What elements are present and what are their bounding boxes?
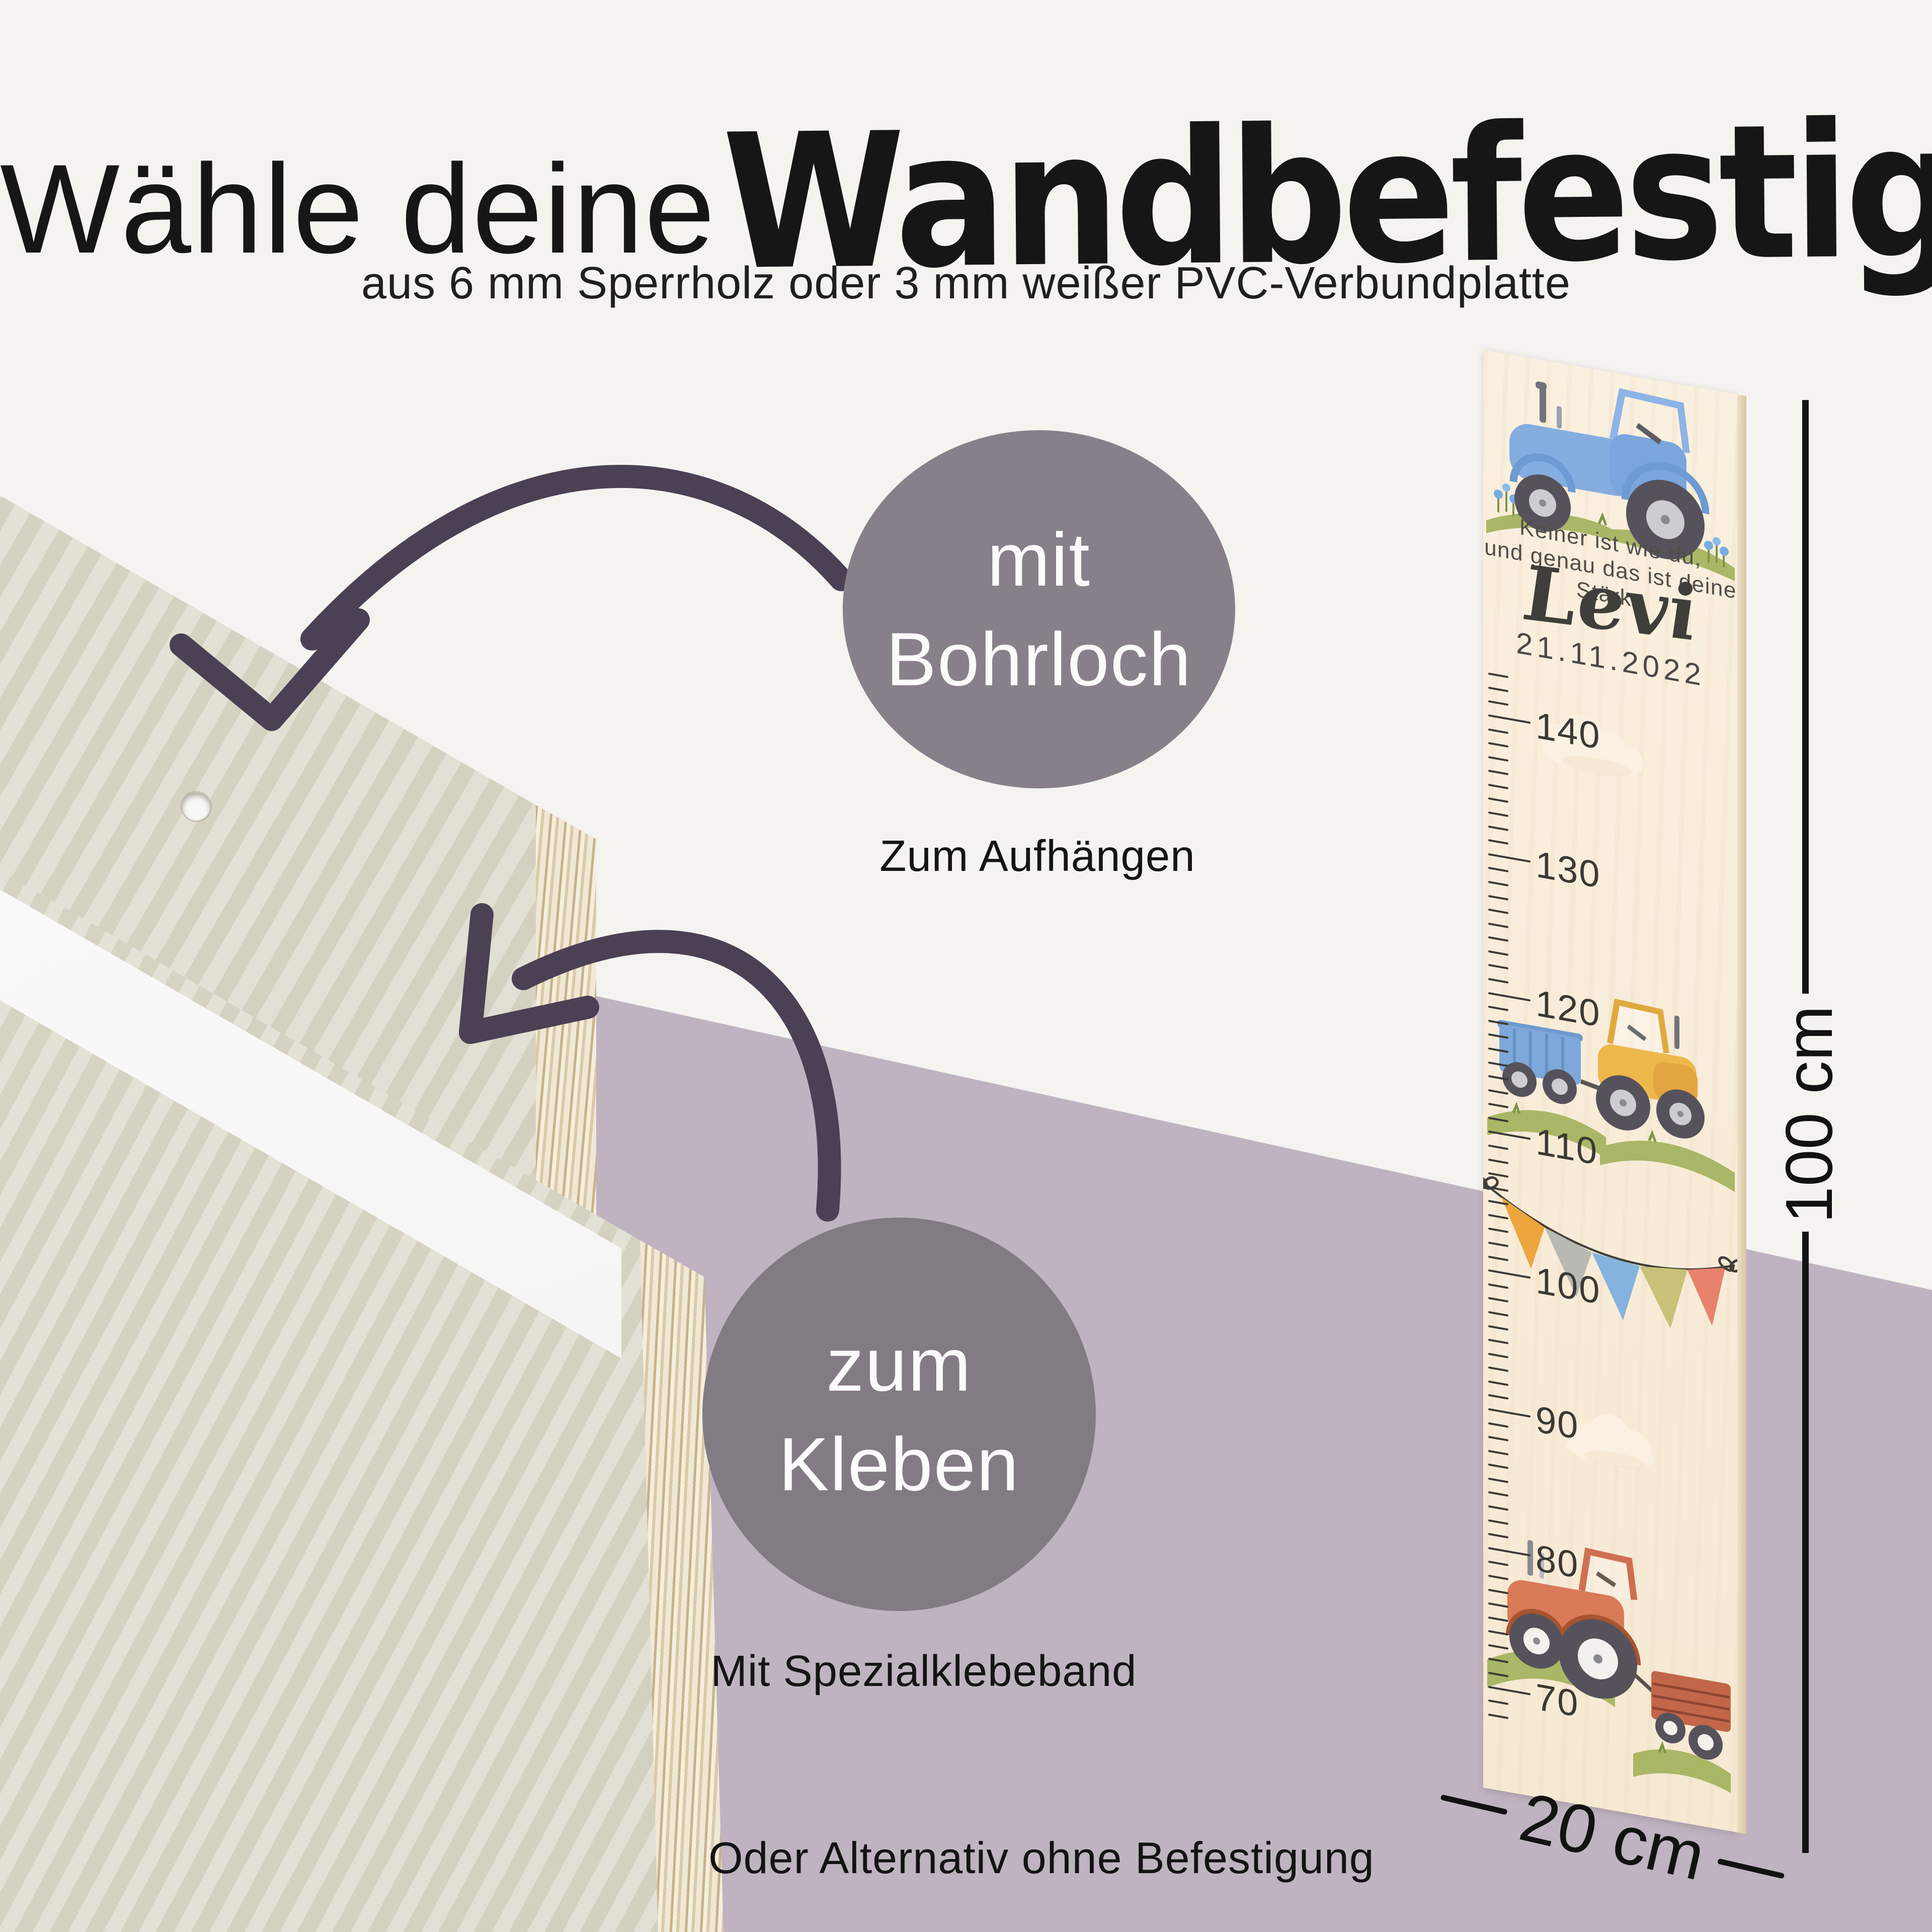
ruler-tick-major (1488, 1547, 1531, 1557)
ruler-tick-major (1488, 1131, 1531, 1140)
ruler-tick-minor (1488, 1561, 1508, 1566)
ruler-tick-minor (1488, 1214, 1508, 1220)
ruler-tick-minor (1488, 1242, 1508, 1247)
ruler-tick-major (1488, 853, 1531, 863)
ruler-tick-minor (1488, 1644, 1508, 1650)
ruler-tick-minor (1488, 1255, 1508, 1261)
ruler-tick-minor (1488, 1172, 1508, 1178)
ruler-tick-major (1488, 1685, 1531, 1695)
ruler-number: 140 (1536, 703, 1600, 758)
ruler: 140130120110100908070 (1483, 350, 1738, 1832)
ruler-number: 90 (1536, 1397, 1579, 1447)
width-dimension-dash-left (1440, 1794, 1508, 1815)
option-drill-line2: Bohrloch (886, 609, 1192, 709)
ruler-number: 80 (1536, 1536, 1579, 1586)
ruler-tick-minor (1488, 1602, 1508, 1608)
ruler-tick-minor (1488, 1491, 1508, 1497)
footer-note: Oder Alternativ ohne Befestigung (629, 1832, 1454, 1884)
ruler-tick-major (1488, 992, 1531, 1001)
drill-hole (182, 792, 210, 821)
ruler-tick-major (1488, 1408, 1531, 1418)
ruler-tick-minor (1488, 673, 1508, 678)
ruler-tick-minor (1488, 1283, 1508, 1289)
ruler-tick-minor (1488, 1048, 1508, 1053)
ruler-tick-minor (1488, 1103, 1508, 1108)
product-infographic: { "title": { "light": "Wähle deine", "ma… (0, 0, 1932, 1932)
ruler-tick-minor (1488, 1672, 1508, 1677)
ruler-tick-minor (1488, 839, 1508, 845)
ruler-tick-minor (1488, 1436, 1508, 1441)
ruler-tick-minor (1488, 895, 1508, 900)
ruler-tick-minor (1488, 1588, 1508, 1594)
ruler-tick-minor (1488, 909, 1508, 914)
ruler-tick-minor (1488, 756, 1508, 761)
ruler-number: 100 (1536, 1259, 1600, 1313)
option-drill-line1: mit (987, 510, 1091, 609)
ruler-tick-minor (1488, 881, 1508, 887)
ruler-tick-minor (1488, 1464, 1508, 1469)
ruler-tick-minor (1488, 1616, 1508, 1622)
ruler-tick-minor (1488, 1339, 1508, 1344)
ruler-tick-minor (1488, 1700, 1508, 1705)
ruler-tick-minor (1488, 1381, 1508, 1386)
ruler-tick-minor (1488, 1200, 1508, 1205)
height-dimension-line-top (1802, 400, 1809, 994)
ruler-tick-minor (1488, 1033, 1508, 1039)
ruler-number: 70 (1536, 1675, 1579, 1725)
ruler-tick-minor (1488, 1533, 1508, 1539)
ruler-tick-minor (1488, 867, 1508, 872)
growth-chart-board: Keiner ist wie du, und genau das ist dei… (1483, 350, 1738, 1832)
height-dimension-line-bottom (1802, 1232, 1809, 1853)
option-circle-drill: mit Bohrloch (843, 430, 1235, 788)
ruler-tick-minor (1488, 742, 1508, 748)
ruler-tick-minor (1488, 1186, 1508, 1191)
ruler-tick-minor (1488, 1297, 1508, 1303)
ruler-number: 120 (1536, 981, 1600, 1035)
ruler-tick-minor (1488, 1478, 1508, 1483)
ruler-tick-minor (1488, 1352, 1508, 1358)
ruler-tick-minor (1488, 1394, 1508, 1400)
ruler-tick-minor (1488, 936, 1508, 942)
option-glue-line2: Kleben (778, 1414, 1019, 1514)
ruler-tick-minor (1488, 1519, 1508, 1524)
ruler-tick-minor (1488, 1020, 1508, 1025)
ruler-tick-minor (1488, 812, 1508, 817)
ruler-number: 110 (1536, 1120, 1598, 1174)
ruler-tick-minor (1488, 1575, 1508, 1580)
ruler-tick-minor (1488, 1505, 1508, 1511)
ruler-tick-minor (1488, 797, 1508, 803)
ruler-tick-major (1488, 714, 1531, 724)
ruler-tick-minor (1488, 1145, 1508, 1150)
option-glue-caption: Mit Spezialklebeband (644, 1646, 1203, 1697)
ruler-tick-major (1488, 1269, 1531, 1279)
ruler-tick-minor (1488, 1311, 1508, 1317)
ruler-tick-minor (1488, 1089, 1508, 1094)
height-dimension-label: 100 cm (1721, 1021, 1897, 1207)
ruler-tick-minor (1488, 950, 1508, 956)
ruler-tick-minor (1488, 1117, 1508, 1122)
ruler-tick-minor (1488, 687, 1508, 692)
ruler-tick-minor (1488, 1325, 1508, 1330)
ruler-tick-minor (1488, 1228, 1508, 1233)
width-dimension-dash-right (1717, 1858, 1785, 1879)
ruler-tick-minor (1488, 1714, 1508, 1719)
ruler-tick-minor (1488, 978, 1508, 984)
option-drill-caption: Zum Aufhängen (786, 831, 1289, 881)
ruler-tick-minor (1488, 1061, 1508, 1067)
ruler-tick-minor (1488, 1158, 1508, 1164)
ruler-tick-minor (1488, 964, 1508, 970)
ruler-tick-minor (1488, 770, 1508, 775)
ruler-tick-minor (1488, 728, 1508, 734)
option-glue-line1: zum (826, 1315, 972, 1414)
ruler-tick-minor (1488, 1006, 1508, 1011)
ruler-tick-minor (1488, 1630, 1508, 1636)
option-circle-glue: zum Kleben (702, 1218, 1096, 1611)
ruler-tick-minor (1488, 1366, 1508, 1372)
ruler-tick-minor (1488, 700, 1508, 706)
ruler-tick-minor (1488, 1658, 1508, 1663)
ruler-tick-minor (1488, 922, 1508, 928)
ruler-tick-minor (1488, 784, 1508, 789)
ruler-number: 130 (1536, 842, 1600, 897)
ruler-tick-minor (1488, 825, 1508, 831)
ruler-tick-minor (1488, 1450, 1508, 1455)
ruler-tick-minor (1488, 1075, 1508, 1081)
ruler-tick-minor (1488, 1422, 1508, 1427)
